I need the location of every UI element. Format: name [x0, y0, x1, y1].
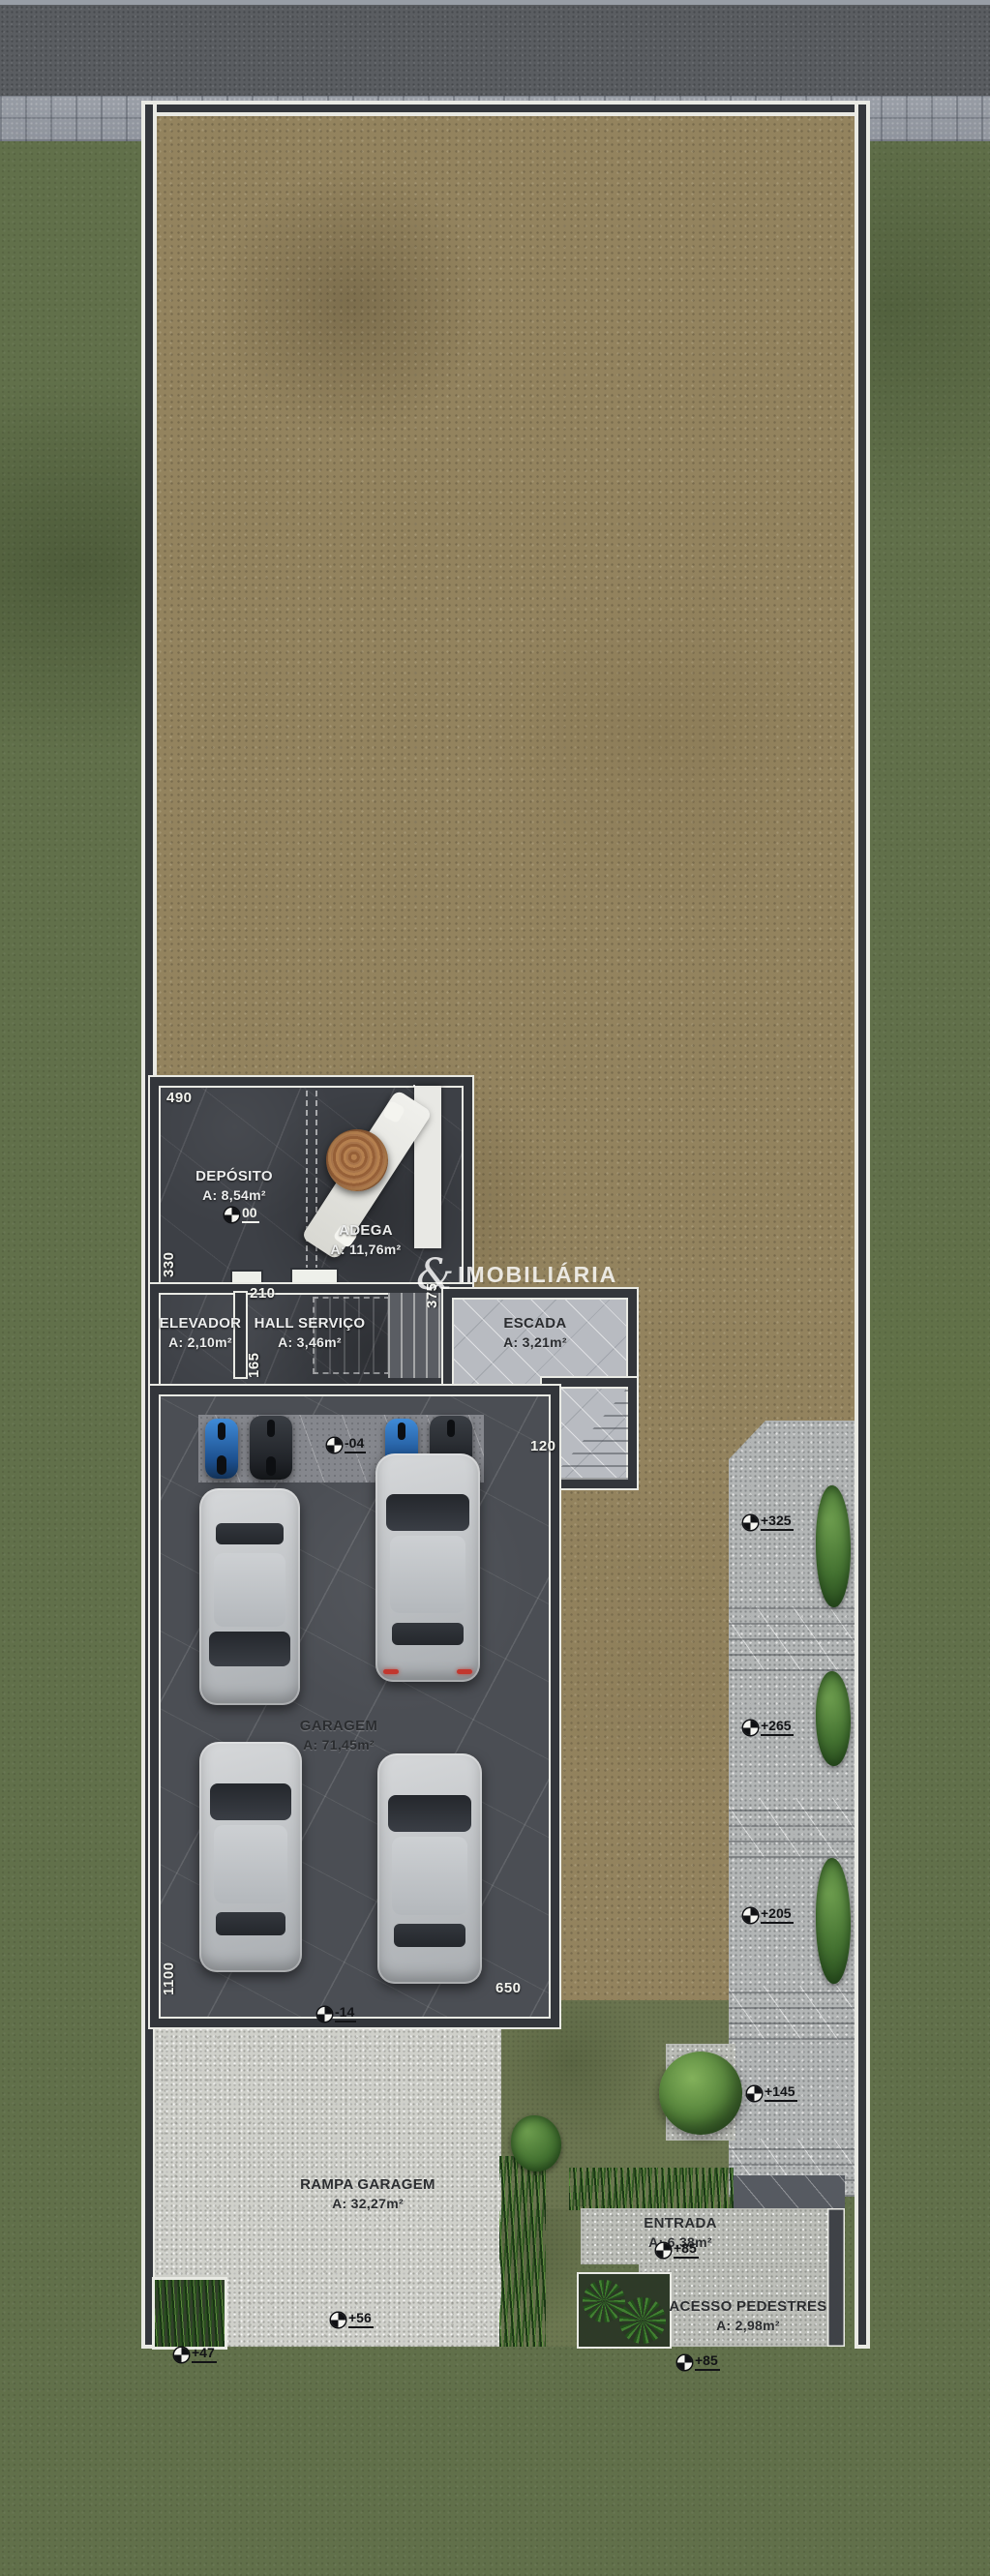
dimension-1100: 1100: [161, 1962, 177, 1995]
path-steps-1: [729, 1606, 855, 1671]
room-name: RAMPA GARAGEM: [300, 2176, 435, 2193]
level-value: +265: [761, 1719, 794, 1736]
car-windshield: [386, 1494, 469, 1531]
level-value: 00: [242, 1206, 259, 1223]
room-area: A: 3,46m²: [227, 1333, 392, 1352]
benchmark-icon: [743, 1721, 758, 1735]
room-area: A: 71,45m²: [256, 1736, 421, 1754]
level-value: +47: [192, 2346, 217, 2363]
path-shrub-2: [816, 1671, 851, 1766]
benchmark-icon: [743, 1908, 758, 1923]
watermark-text: IMOBILIÁRIA: [458, 1262, 617, 1288]
room-name: HALL SERVIÇO: [255, 1315, 366, 1332]
watermark: & IMOBILIÁRIA: [416, 1258, 617, 1292]
label-garagem: GARAGEM A: 71,45m²: [256, 1717, 421, 1754]
ramp-left-planter: [155, 2280, 225, 2347]
car-roof: [214, 1825, 287, 1903]
label-hall-servico: HALL SERVIÇO A: 3,46m²: [227, 1314, 392, 1352]
level-marker-sidewalk-left: +47: [174, 2346, 217, 2363]
path-steps-3: [729, 1986, 855, 2040]
room-name: GARAGEM: [300, 1718, 377, 1734]
car-windshield: [388, 1795, 471, 1832]
room-area: A: 3,21m²: [453, 1333, 617, 1352]
stair-fan-shading: [551, 1387, 628, 1480]
level-marker-deposito: 00: [225, 1206, 259, 1223]
car: [199, 1488, 300, 1705]
level-marker-path-325: +325: [743, 1513, 794, 1531]
plot-wall-right: [856, 103, 868, 2347]
benchmark-icon: [656, 2243, 671, 2258]
level-marker-sidewalk-right: +85: [677, 2353, 720, 2371]
level-marker-ramp-bottom: +56: [331, 2311, 374, 2328]
benchmark-icon: [331, 2313, 345, 2327]
room-name: ESCADA: [503, 1315, 566, 1332]
dimension-330: 330: [161, 1251, 177, 1277]
level-value: +325: [761, 1513, 794, 1531]
level-value: +145: [765, 2084, 797, 2102]
benchmark-icon: [317, 2007, 332, 2022]
motorcycle-blue: [205, 1419, 238, 1479]
label-acesso-pedestres: ACESSO PEDESTRES A: 2,98m²: [666, 2297, 830, 2335]
path-steps-2: [729, 1798, 855, 1858]
car-rear-window: [394, 1924, 465, 1947]
room-area: A: 32,27m²: [285, 2195, 450, 2213]
room-area: A: 2,98m²: [666, 2317, 830, 2335]
label-escada: ESCADA A: 3,21m²: [453, 1314, 617, 1352]
dimension-210: 210: [250, 1285, 276, 1302]
car-windshield: [210, 1783, 292, 1820]
taillight: [457, 1669, 472, 1674]
level-marker-ramp-top: -14: [317, 2005, 356, 2022]
level-marker-path-205: +205: [743, 1906, 794, 1924]
motorcycle-dark: [250, 1416, 292, 1480]
level-value: +56: [348, 2311, 374, 2328]
benchmark-icon: [225, 1208, 239, 1222]
level-value: +205: [761, 1906, 794, 1924]
level-marker-entrance: +85: [656, 2241, 699, 2259]
car-roof: [390, 1536, 465, 1613]
agave-plant: [619, 2297, 666, 2344]
level-marker-path-145: +145: [747, 2084, 797, 2102]
benchmark-icon: [677, 2355, 692, 2370]
label-rampa-garagem: RAMPA GARAGEM A: 32,27m²: [285, 2175, 450, 2213]
benchmark-icon: [743, 1515, 758, 1530]
benchmark-icon: [174, 2348, 189, 2362]
benchmark-icon: [747, 2086, 762, 2101]
watermark-logo-icon: &: [416, 1258, 454, 1292]
round-wood-table: [326, 1129, 388, 1191]
level-value: +85: [674, 2241, 699, 2259]
car-roof: [214, 1553, 286, 1627]
room-name: ENTRADA: [644, 2215, 716, 2232]
room-name: DEPÓSITO: [195, 1168, 273, 1184]
ornamental-grass-ramp-edge: [499, 2156, 546, 2347]
car-roof: [392, 1837, 467, 1915]
floor-plan-render: DEPÓSITO A: 8,54m² ADEGA A: 11,76m² ELEV…: [0, 0, 990, 2576]
label-deposito: DEPÓSITO A: 8,54m²: [152, 1167, 316, 1205]
room-name: ACESSO PEDESTRES: [669, 2298, 826, 2315]
agave-planter: [579, 2274, 670, 2347]
entry-dark-landing: [733, 2175, 845, 2210]
tree-canopy: [659, 2052, 742, 2135]
car-windshield: [209, 1632, 289, 1666]
taillight: [383, 1669, 399, 1674]
dimension-165: 165: [246, 1352, 262, 1378]
room-name: ADEGA: [339, 1222, 393, 1239]
level-value: +85: [695, 2353, 720, 2371]
car-rear-window: [216, 1523, 285, 1544]
level-marker-path-265: +265: [743, 1719, 794, 1736]
room-area: A: 8,54m²: [152, 1186, 316, 1205]
level-marker-garage: -04: [327, 1436, 366, 1453]
plot-wall-top: [143, 103, 868, 114]
dimension-120: 120: [530, 1438, 556, 1454]
ornamental-grass-entry-row: [569, 2168, 734, 2210]
car-rear-window: [392, 1623, 463, 1646]
car: [375, 1453, 480, 1682]
car: [377, 1753, 482, 1984]
benchmark-icon: [327, 1438, 342, 1453]
car-rear-window: [216, 1912, 285, 1935]
bush: [511, 2115, 561, 2172]
level-value: -14: [335, 2005, 356, 2022]
planter-grasses: [155, 2280, 225, 2347]
dimension-490: 490: [166, 1090, 193, 1106]
level-value: -04: [345, 1436, 366, 1453]
car: [199, 1742, 302, 1972]
street-road: [0, 0, 990, 96]
dimension-650: 650: [495, 1980, 522, 1996]
